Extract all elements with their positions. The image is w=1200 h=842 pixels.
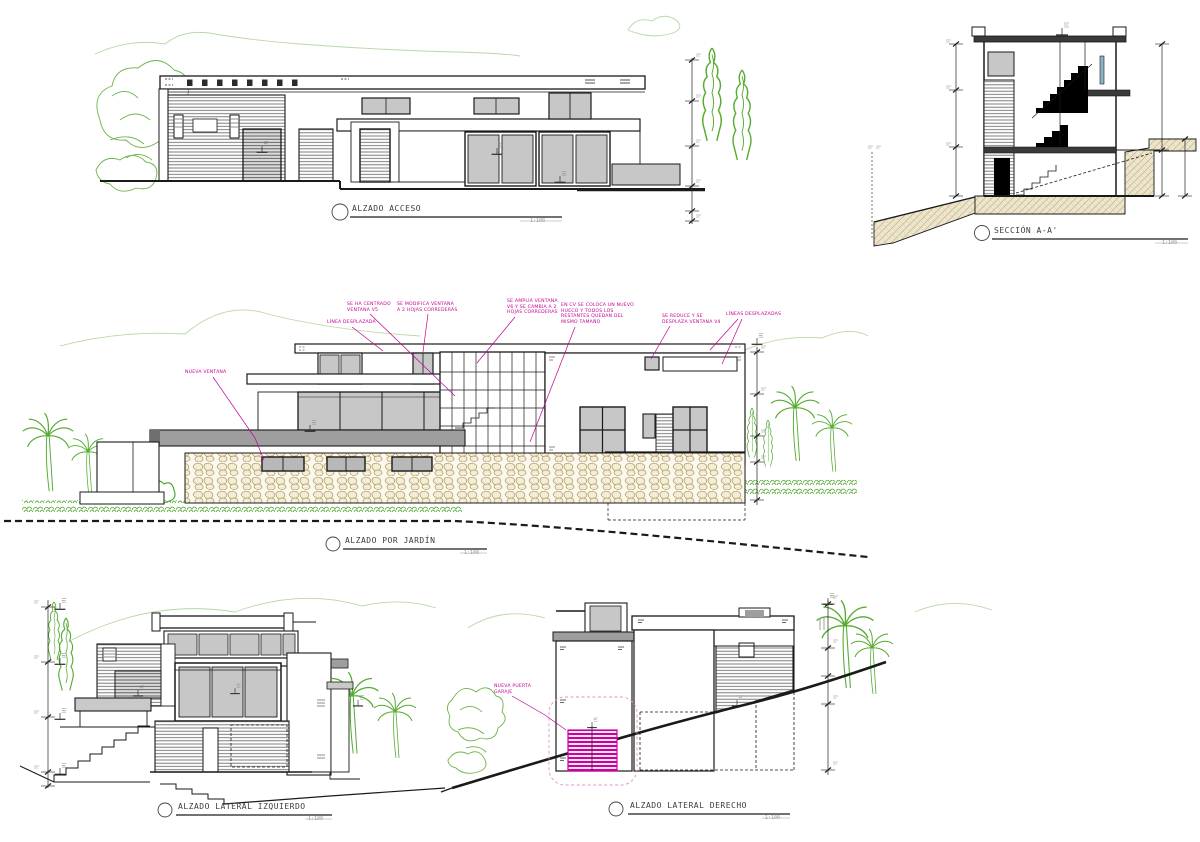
- exterior-stairs: [160, 784, 224, 804]
- dimension-line: [685, 54, 701, 224]
- garage-door: [243, 129, 281, 181]
- view-title-access: ALZADO ACCESO: [352, 204, 421, 213]
- terrace-slab: [150, 430, 465, 446]
- building-access: [100, 76, 705, 190]
- stair-tower-glazing: [440, 352, 545, 470]
- new-garage-door: [568, 730, 617, 771]
- roof-band: [157, 616, 287, 628]
- ground-hatch: [874, 197, 975, 246]
- view-scale-lateral-left: 1:100: [308, 816, 323, 822]
- building-lateral-left: [20, 613, 445, 804]
- view-scale-section: 1:100: [1162, 240, 1177, 246]
- drawing-linework: [0, 0, 1200, 842]
- drawing-sheet: ALZADO ACCESO 1:100 SECCIÓN A-A' 1:100 A…: [0, 0, 1200, 842]
- window: [988, 52, 1014, 76]
- building-lateral-right: [441, 603, 886, 792]
- annotation-lineas-desplazadas: LÍNEAS DESPLAZADAS: [726, 312, 781, 318]
- elevation-lateral-right: [441, 594, 992, 819]
- dimension-line: [34, 599, 66, 789]
- annotation-centrado-v5: SE HA CENTRADO VENTANA V5: [347, 302, 391, 313]
- building-garden: [4, 344, 868, 557]
- elevation-garden: [4, 310, 868, 557]
- slab-band: [553, 632, 635, 641]
- tower-wall: [287, 653, 331, 775]
- background-hills: [95, 16, 680, 56]
- view-scale-access: 1:100: [530, 218, 545, 224]
- annotation-reduce-v4: SE REDUCE Y SE DESPLAZA VENTANA V4: [662, 314, 721, 325]
- roof-band: [632, 616, 794, 630]
- window-v4: [645, 357, 659, 370]
- annotation-amplia-v6: SE AMPLIA VENTANA V6 Y SE CAMBIA A 2 HOJ…: [507, 299, 558, 316]
- base-wall: [155, 721, 289, 772]
- view-title-lateral-left: ALZADO LATERAL IZQUIERDO: [178, 802, 306, 811]
- annotation-cv-nuevo-hueco: EN CV SE COLOCA UN NUEVO HUECO Y TODOS L…: [561, 303, 634, 326]
- annotation-linea-desplazada: LÍNEA DESPLAZADA: [327, 320, 376, 326]
- elevation-lateral-left: [20, 598, 445, 819]
- view-title-garden: ALZADO POR JARDÍN: [345, 536, 435, 545]
- view-scale-lateral-right: 1:100: [765, 815, 780, 821]
- ground-line-dashed: [455, 521, 868, 557]
- exterior-stairs: [54, 726, 150, 782]
- annotation-nueva-puerta-garaje: NUEVA PUERTA GARAJE: [494, 684, 531, 695]
- door-opening: [994, 158, 1010, 196]
- view-scale-garden: 1:100: [464, 550, 479, 556]
- entry-door: [360, 129, 390, 182]
- annotation-modifica-ventana: SE MODIFICA VENTANA A 2 HOJAS CORREDERAS: [397, 302, 457, 313]
- section-view: [868, 23, 1196, 246]
- annotation-nueva-ventana: NUEVA VENTANA: [185, 370, 226, 376]
- window-band: [298, 392, 460, 430]
- terrace-parapet: [612, 164, 680, 185]
- window: [474, 98, 519, 114]
- terrace-slab: [75, 698, 151, 711]
- floor-slab: [984, 147, 1116, 153]
- elevation-access: [95, 16, 751, 224]
- view-title-section: SECCIÓN A-A': [994, 226, 1058, 235]
- fascia-band: [247, 374, 465, 384]
- ground-hatch: [975, 196, 1125, 214]
- view-title-lateral-right: ALZADO LATERAL DERECHO: [630, 801, 747, 810]
- roof-slab: [974, 36, 1126, 42]
